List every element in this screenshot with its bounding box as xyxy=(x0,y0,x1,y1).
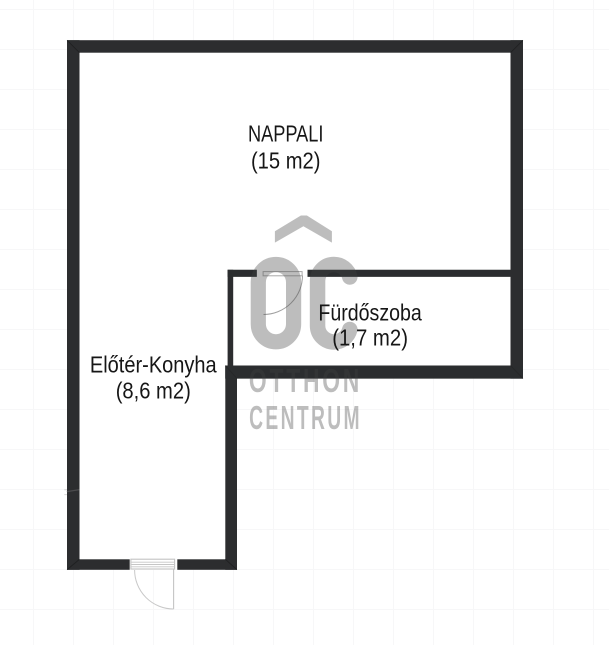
svg-text:(1,7 m2): (1,7 m2) xyxy=(332,325,408,351)
svg-text:CENTRUM: CENTRUM xyxy=(249,398,362,436)
svg-text:Fürdőszoba: Fürdőszoba xyxy=(318,300,422,326)
svg-text:NAPPALI: NAPPALI xyxy=(248,121,324,147)
svg-text:(8,6 m2): (8,6 m2) xyxy=(116,378,191,404)
svg-text:(15 m2): (15 m2) xyxy=(251,147,321,173)
svg-text:Előtér-Konyha: Előtér-Konyha xyxy=(90,352,218,378)
